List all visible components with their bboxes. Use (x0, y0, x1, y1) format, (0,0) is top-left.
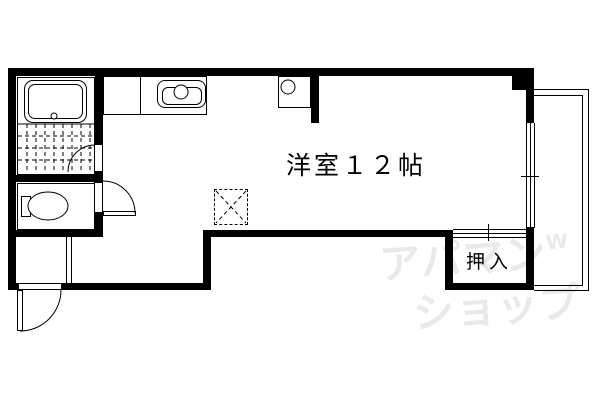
wall-kitchen-partition (311, 68, 319, 123)
floorplan: アパマンW ショップ (0, 0, 600, 400)
wall-bath-toilet-divider (8, 175, 103, 182)
wall-bottom-left (61, 283, 211, 290)
entrance-door-swing-icon (20, 290, 61, 331)
wall-entry-nub (8, 283, 19, 290)
wall-toilet-bottom (8, 230, 103, 237)
wall-right-lower (526, 227, 534, 290)
wall-closet-left (445, 233, 453, 290)
wall-main-bottom (203, 230, 453, 237)
balcony-inner-outline (534, 95, 583, 286)
main-room-label: 洋室１２帖 (286, 146, 426, 182)
entrance-threshold (19, 283, 61, 290)
hall-partition-line (66, 237, 72, 283)
closet-sliding-center-line (453, 233, 526, 234)
wall-top (8, 68, 534, 76)
sliding-window-tick (521, 176, 539, 177)
kitchen-counter-divider (140, 76, 141, 115)
toilet-door-frame (94, 182, 103, 213)
water-heater-icon (278, 76, 311, 108)
bathtub-inner-icon (28, 84, 83, 119)
wall-step-vertical (203, 230, 211, 290)
toilet-door-leaf (103, 211, 136, 216)
toilet-tank-icon (21, 196, 31, 217)
kitchen-sink-inner-icon (162, 87, 202, 105)
wall-closet-bottom (445, 283, 534, 290)
toilet-door-swing-icon (103, 181, 135, 213)
closet-sliding-tick (488, 224, 489, 241)
watermark-line1: アパマン (378, 229, 548, 289)
bathroom-door-frame (94, 144, 103, 172)
wall-corner-block (512, 76, 534, 90)
closet-label: 押入 (466, 247, 512, 274)
wall-bath-right-upper (95, 76, 103, 144)
washing-machine-space-icon (214, 189, 248, 225)
entrance-door-leaf (17, 290, 23, 331)
wall-bath-right-lower (95, 212, 103, 237)
